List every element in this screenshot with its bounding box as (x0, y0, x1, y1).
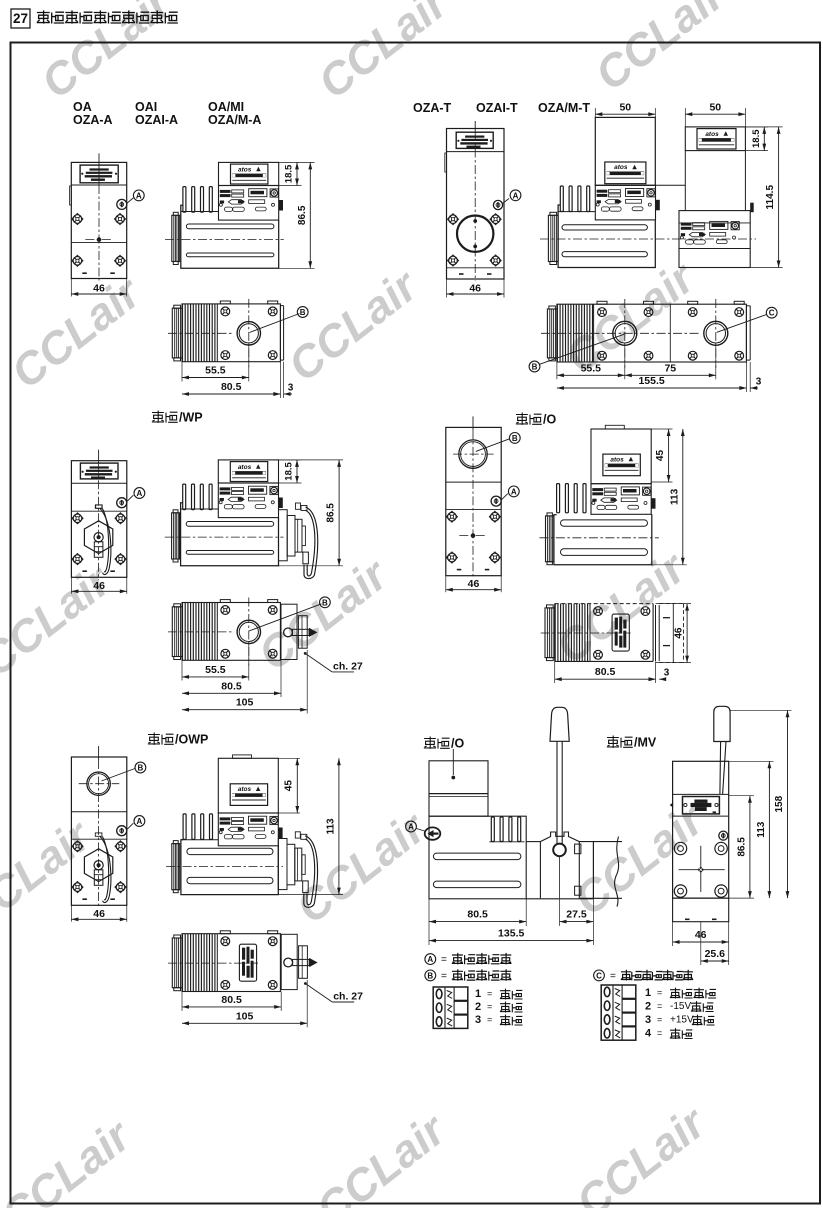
svg-text:45: 45 (284, 780, 295, 792)
svg-text:A: A (427, 955, 433, 964)
svg-text:46: 46 (674, 627, 685, 639)
svg-text:/MV: /MV (634, 736, 657, 750)
svg-text:atos: atos (238, 786, 252, 793)
svg-text:=: = (487, 1015, 492, 1025)
svg-text:B: B (427, 971, 433, 980)
svg-text:80.5: 80.5 (221, 381, 242, 393)
svg-text:55.5: 55.5 (581, 362, 602, 374)
svg-text:=: = (441, 971, 447, 982)
svg-text:atos: atos (705, 131, 719, 138)
svg-text:18.5: 18.5 (283, 461, 294, 480)
svg-text:B: B (512, 434, 518, 443)
svg-text:C: C (596, 971, 602, 980)
svg-text:113: 113 (325, 818, 336, 835)
svg-text:113: 113 (756, 821, 767, 838)
svg-text:A: A (513, 191, 519, 200)
svg-text:4: 4 (645, 1028, 652, 1040)
svg-text:/O: /O (451, 737, 464, 751)
svg-text:18.5: 18.5 (283, 164, 294, 183)
svg-text:46: 46 (469, 283, 481, 295)
svg-text:=: = (657, 1001, 662, 1011)
svg-text:46: 46 (93, 908, 105, 920)
svg-text:50: 50 (619, 102, 631, 114)
svg-text:B: B (322, 598, 328, 607)
svg-text:3: 3 (664, 668, 670, 679)
svg-text:B: B (138, 764, 144, 773)
svg-text:3: 3 (756, 377, 762, 388)
svg-text:OZA-A: OZA-A (73, 113, 113, 127)
svg-text:A: A (137, 489, 143, 498)
svg-text:-15V: -15V (670, 1001, 691, 1012)
svg-text:45: 45 (655, 450, 666, 462)
svg-text:86.5: 86.5 (326, 503, 337, 523)
svg-text:ch. 27: ch. 27 (333, 660, 363, 672)
svg-text:135.5: 135.5 (498, 928, 524, 940)
svg-text:/O: /O (543, 413, 556, 427)
svg-text:A: A (136, 191, 142, 200)
svg-text:/WP: /WP (179, 411, 203, 425)
svg-text:80.5: 80.5 (467, 909, 488, 921)
svg-text:155.5: 155.5 (638, 375, 664, 387)
svg-text:OZAI-T: OZAI-T (476, 101, 518, 115)
svg-text:OAI: OAI (135, 100, 157, 114)
svg-text:A: A (408, 823, 414, 832)
svg-text:OZA/M-A: OZA/M-A (208, 113, 261, 127)
svg-text:2: 2 (645, 1001, 651, 1013)
svg-text:46: 46 (468, 578, 480, 590)
svg-text:3: 3 (288, 383, 294, 394)
svg-text:OA: OA (73, 100, 92, 114)
svg-text:80.5: 80.5 (221, 680, 242, 692)
svg-text:C: C (769, 309, 775, 318)
svg-text:OZA/M-T: OZA/M-T (538, 101, 590, 115)
svg-text:86.5: 86.5 (736, 837, 747, 857)
svg-text:OZAI-A: OZAI-A (135, 113, 178, 127)
svg-text:atos: atos (238, 464, 252, 471)
svg-text:114.5: 114.5 (765, 185, 776, 210)
svg-text:105: 105 (236, 697, 254, 709)
svg-text:80.5: 80.5 (595, 666, 616, 678)
svg-text:A: A (137, 817, 143, 826)
svg-text:A: A (511, 487, 517, 496)
svg-text:OA/MI: OA/MI (208, 100, 244, 114)
svg-text:25.6: 25.6 (705, 948, 726, 960)
svg-text:50: 50 (709, 102, 721, 114)
svg-text:1: 1 (475, 988, 481, 1000)
svg-text:=: = (610, 971, 616, 982)
svg-text:+15V: +15V (670, 1015, 694, 1026)
svg-text:B: B (532, 363, 538, 372)
svg-text:55.5: 55.5 (205, 664, 226, 676)
svg-text:2: 2 (475, 1001, 481, 1013)
svg-text:75: 75 (664, 362, 676, 374)
svg-text:3: 3 (475, 1014, 481, 1026)
svg-text:=: = (657, 1015, 662, 1025)
svg-text:105: 105 (236, 1010, 254, 1022)
svg-text:80.5: 80.5 (221, 994, 242, 1006)
svg-text:atos: atos (610, 456, 624, 463)
svg-text:18.5: 18.5 (751, 129, 762, 148)
svg-text:=: = (487, 989, 492, 999)
svg-text:=: = (657, 1028, 662, 1038)
svg-text:=: = (441, 955, 447, 966)
svg-text:55.5: 55.5 (205, 365, 226, 377)
svg-text:atos: atos (614, 164, 628, 171)
svg-text:27: 27 (13, 11, 28, 26)
svg-text:158: 158 (774, 795, 785, 812)
svg-text:113: 113 (669, 488, 680, 505)
svg-text:ch. 27: ch. 27 (333, 991, 363, 1003)
svg-text:46: 46 (93, 580, 105, 592)
svg-text:/OWP: /OWP (175, 733, 208, 747)
svg-text:OZA-T: OZA-T (413, 101, 452, 115)
svg-text:86.5: 86.5 (297, 205, 308, 225)
svg-text:atos: atos (238, 166, 252, 173)
svg-text:1: 1 (645, 987, 651, 999)
svg-text:B: B (300, 308, 306, 317)
svg-text:46: 46 (93, 283, 105, 295)
svg-text:=: = (657, 988, 662, 998)
svg-text:27.5: 27.5 (566, 909, 587, 921)
svg-text:3: 3 (645, 1014, 651, 1026)
svg-text:=: = (487, 1002, 492, 1012)
